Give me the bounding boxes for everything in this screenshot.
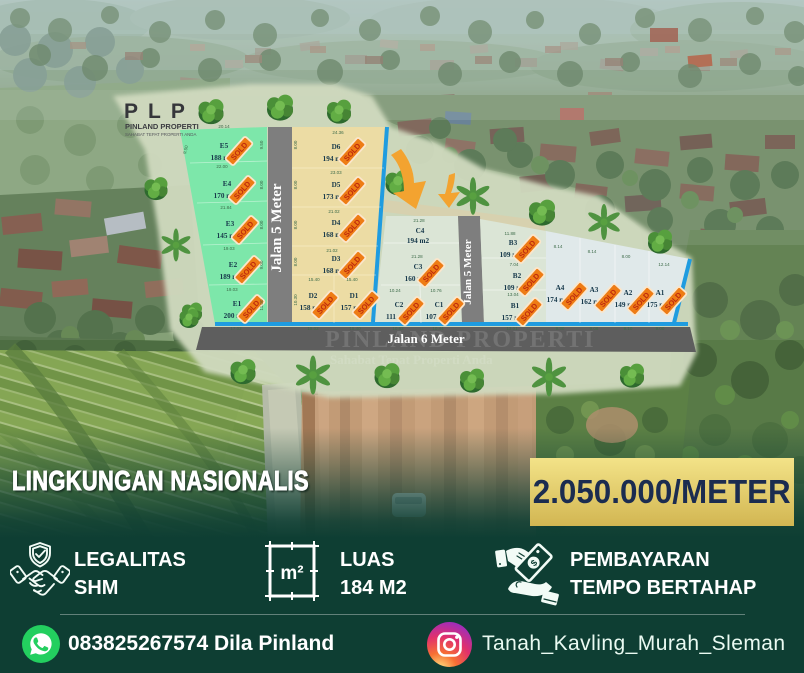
svg-text:12.14: 12.14 <box>658 262 670 267</box>
svg-text:15.40: 15.40 <box>308 277 320 282</box>
svg-text:E2: E2 <box>229 261 238 269</box>
svg-text:19.03: 19.03 <box>223 246 235 251</box>
svg-text:8.00: 8.00 <box>259 220 264 229</box>
svg-text:13.04: 13.04 <box>507 292 519 297</box>
svg-text:21.84: 21.84 <box>220 205 232 210</box>
svg-text:11.00: 11.00 <box>259 299 264 310</box>
svg-text:8.00: 8.00 <box>293 180 298 189</box>
svg-text:21.02: 21.02 <box>326 248 338 253</box>
svg-text:21.02: 21.02 <box>328 209 340 214</box>
svg-text:21.28: 21.28 <box>413 218 425 223</box>
svg-text:A4: A4 <box>556 284 565 292</box>
svg-text:m²: m² <box>280 563 303 584</box>
svg-text:C1: C1 <box>435 301 444 309</box>
svg-text:9.00: 9.00 <box>259 260 264 269</box>
svg-text:15.02: 15.02 <box>307 326 319 331</box>
svg-text:17.02: 17.02 <box>230 326 242 331</box>
svg-text:D4: D4 <box>332 219 341 227</box>
svg-text:9.00: 9.00 <box>656 326 665 331</box>
svg-text:22.00: 22.00 <box>216 164 228 169</box>
svg-text:Jalan 5 Meter: Jalan 5 Meter <box>269 183 285 272</box>
svg-text:20.14: 20.14 <box>218 124 230 129</box>
svg-text:10.30: 10.30 <box>293 294 298 306</box>
svg-text:C2: C2 <box>395 301 404 309</box>
svg-text:E5: E5 <box>220 142 229 150</box>
svg-text:B3: B3 <box>509 239 518 247</box>
svg-text:D2: D2 <box>309 292 318 300</box>
svg-text:E1: E1 <box>233 300 242 308</box>
svg-text:8.00: 8.00 <box>259 180 264 189</box>
svg-text:8.00: 8.00 <box>293 257 298 266</box>
svg-text:8.00: 8.00 <box>293 220 298 229</box>
svg-text:13.01: 13.01 <box>506 326 518 331</box>
svg-text:10.24: 10.24 <box>389 288 401 293</box>
svg-text:9.06: 9.06 <box>590 326 599 331</box>
svg-text:A1: A1 <box>656 289 665 297</box>
svg-text:E4: E4 <box>223 180 232 188</box>
svg-text:SAHABAT TEPAT PROPERTI ANDA: SAHABAT TEPAT PROPERTI ANDA <box>125 132 196 137</box>
svg-text:8.14: 8.14 <box>554 244 563 249</box>
svg-text:8.00: 8.00 <box>293 140 298 149</box>
svg-text:PLP: PLP <box>124 100 195 123</box>
svg-text:PINLAND PROPERTI: PINLAND PROPERTI <box>125 122 199 131</box>
svg-text:D6: D6 <box>332 143 341 151</box>
svg-text:10.62: 10.62 <box>392 326 404 331</box>
svg-text:10.44: 10.44 <box>432 326 444 331</box>
svg-text:B1: B1 <box>511 302 520 310</box>
svg-text:C4: C4 <box>416 227 425 235</box>
svg-text:23.03: 23.03 <box>330 170 342 175</box>
svg-text:8.00: 8.00 <box>622 254 631 259</box>
svg-text:8.14: 8.14 <box>588 249 597 254</box>
svg-text:9.10: 9.10 <box>624 326 633 331</box>
svg-text:Jalan 5 Meter: Jalan 5 Meter <box>462 239 474 304</box>
svg-text:A2: A2 <box>624 289 633 297</box>
svg-text:A3: A3 <box>590 286 599 294</box>
svg-text:10.76: 10.76 <box>430 288 442 293</box>
svg-text:11.88: 11.88 <box>505 231 516 236</box>
svg-text:D3: D3 <box>332 255 341 263</box>
svg-text:19.03: 19.03 <box>226 287 238 292</box>
svg-text:C3: C3 <box>414 263 423 271</box>
svg-text:B2: B2 <box>513 272 522 280</box>
svg-text:7.04: 7.04 <box>510 262 519 267</box>
svg-text:15.40: 15.40 <box>346 277 358 282</box>
svg-text:24.36: 24.36 <box>332 130 344 135</box>
svg-text:21.28: 21.28 <box>411 254 423 259</box>
svg-text:9.50: 9.50 <box>259 140 264 149</box>
svg-text:15.40: 15.40 <box>349 326 361 331</box>
svg-text:9.30: 9.30 <box>556 326 565 331</box>
svg-text:E3: E3 <box>226 220 235 228</box>
svg-text:D1: D1 <box>350 292 359 300</box>
svg-text:D5: D5 <box>332 181 341 189</box>
svg-text:Sahabat Tepat Properti Anda: Sahabat Tepat Properti Anda <box>330 352 493 367</box>
svg-text:194 m2: 194 m2 <box>407 237 430 245</box>
